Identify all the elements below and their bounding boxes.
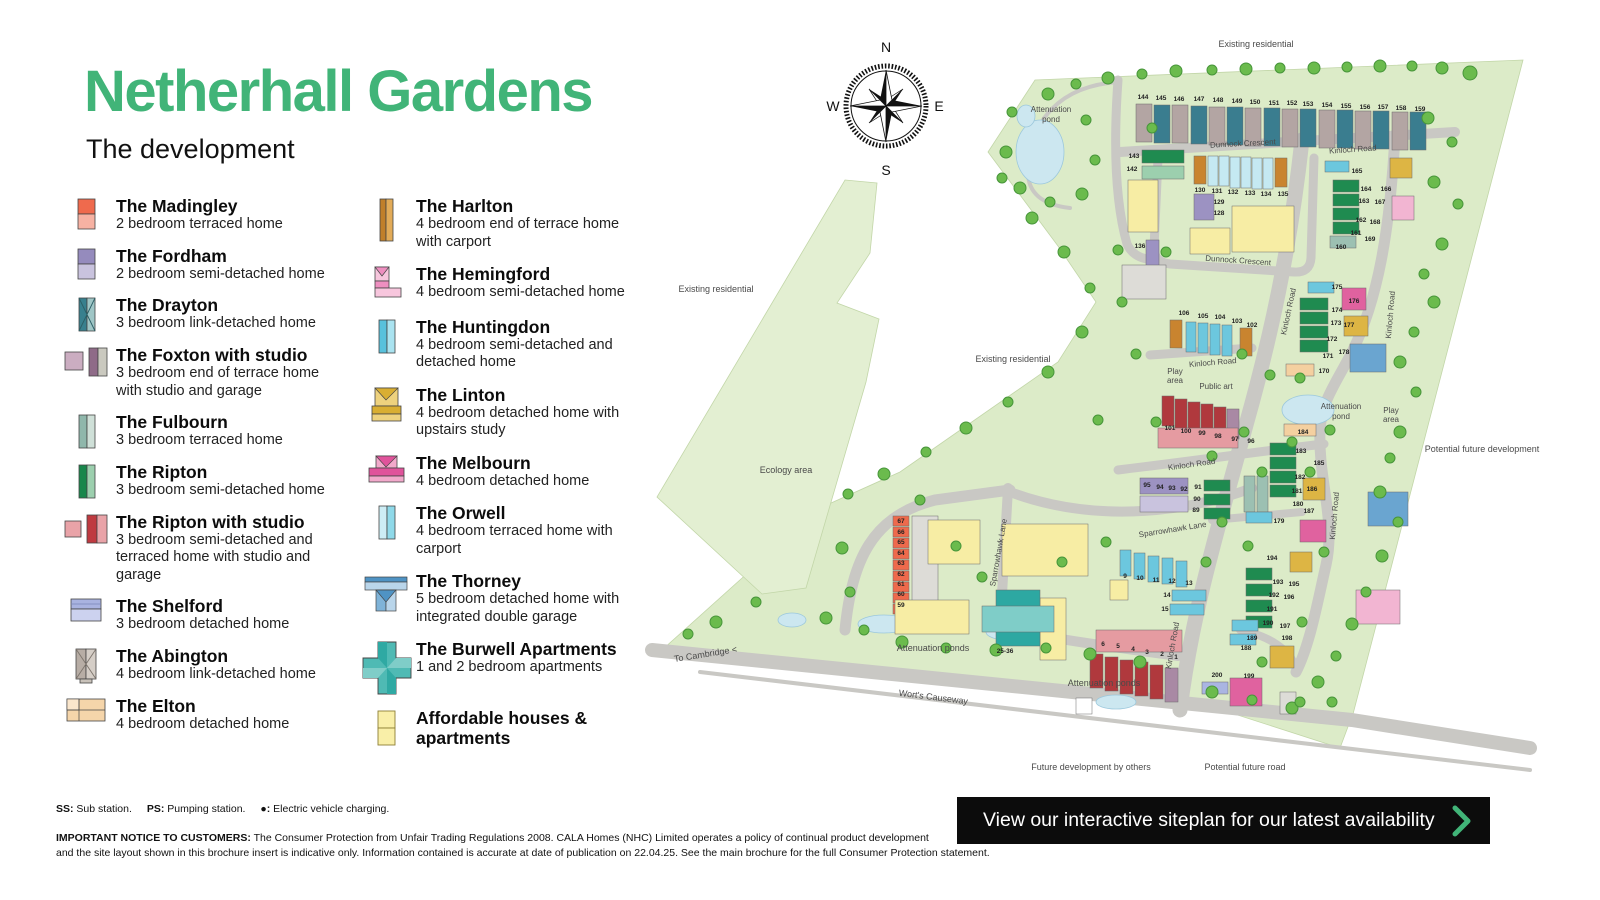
tree-icon <box>1071 79 1081 89</box>
legend-item-fordham: The Fordham2 bedroom semi-detached home <box>58 246 368 284</box>
house-block <box>1191 106 1207 144</box>
map-label: Public art <box>1199 382 1233 391</box>
plot-number: 182 <box>1295 474 1306 481</box>
tree-icon <box>1394 356 1406 368</box>
tree-icon <box>1305 467 1315 477</box>
ps-text: Pumping station. <box>164 803 245 815</box>
plot-number: 189 <box>1247 635 1258 642</box>
plot-number: 134 <box>1261 191 1272 198</box>
legend-desc: 4 bedroom end of terrace home with carpo… <box>416 216 628 251</box>
plot-number: 154 <box>1322 102 1333 109</box>
plot-number: 165 <box>1352 168 1363 175</box>
tree-icon <box>1361 587 1371 597</box>
plot-number: 62 <box>897 571 905 578</box>
tree-icon <box>1257 657 1267 667</box>
map-label: Attenuation ponds <box>1068 678 1141 688</box>
plot-number: 162 <box>1356 217 1367 224</box>
tree-icon <box>1342 62 1352 72</box>
house-block <box>1263 158 1273 189</box>
legend-column-2: The Harlton4 bedroom end of terrace home… <box>358 196 658 761</box>
tree-icon <box>1393 517 1403 527</box>
legend-item-melbourn: The Melbourn4 bedroom detached home <box>358 453 658 491</box>
tree-icon <box>1308 62 1320 74</box>
tree-icon <box>843 489 853 499</box>
house-block <box>1204 494 1230 505</box>
plot-number: 159 <box>1415 106 1426 113</box>
legend-name: The Foxton with studio <box>116 345 368 365</box>
ev-charging-icon: ●: <box>260 803 270 815</box>
house-block <box>1136 104 1152 142</box>
tree-icon <box>1419 269 1429 279</box>
house-block <box>1194 156 1206 184</box>
house-block <box>1002 524 1088 576</box>
tree-icon <box>710 616 722 628</box>
plot-number: 94 <box>1156 484 1164 491</box>
house-block <box>1333 180 1359 192</box>
plot-number: 145 <box>1156 95 1167 102</box>
plot-number: 195 <box>1289 581 1300 588</box>
plot-number: 194 <box>1267 555 1278 562</box>
tree-icon <box>1409 327 1419 337</box>
legend-item-elton: The Elton4 bedroom detached home <box>58 696 368 734</box>
tree-icon <box>1394 426 1406 438</box>
map-label: Attenuation <box>1321 402 1361 411</box>
legend-desc: 1 and 2 bedroom apartments <box>416 659 628 676</box>
ps-abbrev: PS: <box>147 803 165 815</box>
tree-icon <box>1319 547 1329 557</box>
legend-item-abington: The Abington4 bedroom link-detached home <box>58 646 368 684</box>
plot-number: 183 <box>1296 448 1307 455</box>
thorney-icon <box>358 571 416 626</box>
page-title: Netherhall Gardens <box>84 58 592 125</box>
plot-number: 65 <box>897 539 905 546</box>
tree-icon <box>1297 617 1307 627</box>
house-block <box>1300 326 1328 338</box>
house-block <box>1162 396 1174 426</box>
house-block <box>1230 678 1262 706</box>
tree-icon <box>1161 247 1171 257</box>
tree-icon <box>1093 415 1103 425</box>
melbourn-icon <box>358 453 416 491</box>
legend-name: The Elton <box>116 696 368 716</box>
legend-desc: 3 bedroom semi-detached home <box>116 482 328 499</box>
legend-desc: 4 bedroom detached home <box>416 473 628 490</box>
house-block <box>1300 312 1328 324</box>
legend-item-linton: The Linton4 bedroom detached home with u… <box>358 385 658 440</box>
map-label: pond <box>1042 115 1060 124</box>
plot-number: 105 <box>1198 313 1209 320</box>
map-label: pond <box>1332 412 1350 421</box>
tree-icon <box>1134 656 1146 668</box>
legend-item-affordable: Affordable houses & apartments <box>358 708 658 748</box>
plot-number: 190 <box>1263 620 1274 627</box>
plot-number: 173 <box>1331 320 1342 327</box>
tree-icon <box>1247 695 1257 705</box>
legend-name: The Linton <box>416 385 658 405</box>
tree-icon <box>1045 197 1055 207</box>
house-block <box>1210 324 1220 355</box>
plot-number: 151 <box>1269 100 1280 107</box>
plot-number: 169 <box>1365 236 1376 243</box>
plot-number: 61 <box>897 581 905 588</box>
tree-icon <box>1147 123 1157 133</box>
tree-icon <box>1243 541 1253 551</box>
plot-number: 175 <box>1332 284 1343 291</box>
map-label: Ecology area <box>760 465 813 475</box>
house-block <box>1300 109 1316 147</box>
legend-item-fulbourn: The Fulbourn3 bedroom terraced home <box>58 412 368 450</box>
legend-desc: 3 bedroom semi-detached and terraced hom… <box>116 532 328 584</box>
tree-icon <box>1137 69 1147 79</box>
plot-number: 136 <box>1135 243 1146 250</box>
tree-icon <box>1014 182 1026 194</box>
fordham-icon <box>58 246 116 284</box>
plot-number: 143 <box>1129 153 1140 160</box>
legend-name: The Huntingdon <box>416 317 658 337</box>
house-block <box>1198 323 1208 353</box>
house-block <box>1290 552 1312 572</box>
tree-icon <box>1275 63 1285 73</box>
legend-desc: 3 bedroom terraced home <box>116 432 328 449</box>
tree-icon <box>1428 176 1440 188</box>
legend-desc: 3 bedroom link-detached home <box>116 315 328 332</box>
compass-n-label: N <box>881 39 891 55</box>
plot-number: 63 <box>897 560 905 567</box>
plot-number: 152 <box>1287 100 1298 107</box>
pond <box>1016 120 1064 184</box>
legend-desc: 4 bedroom semi-detached and detached hom… <box>416 337 628 372</box>
house-block <box>1244 476 1255 512</box>
house-block <box>1300 340 1328 352</box>
legend-desc: 3 bedroom detached home <box>116 616 328 633</box>
legend-desc: 3 bedroom end of terrace home with studi… <box>116 365 328 400</box>
notice-line1: The Consumer Protection from Unfair Trad… <box>251 832 929 844</box>
house-block <box>1110 580 1128 600</box>
plot-number: 135 <box>1278 191 1289 198</box>
legend-item-hemingford: The Hemingford4 bedroom semi-detached ho… <box>358 264 658 304</box>
ripton-studio-icon <box>58 512 116 584</box>
plot-number: 97 <box>1231 436 1239 443</box>
harlton-icon <box>358 196 416 251</box>
tree-icon <box>977 572 987 582</box>
tree-icon <box>1436 238 1448 250</box>
tree-icon <box>859 625 869 635</box>
tree-icon <box>1207 65 1217 75</box>
tree-icon <box>836 542 848 554</box>
ev-text: Electric vehicle charging. <box>270 803 389 815</box>
tree-icon <box>1295 697 1305 707</box>
legend-item-madingley: The Madingley2 bedroom terraced home <box>58 196 368 234</box>
tree-icon <box>1217 517 1227 527</box>
plot-number: 155 <box>1341 103 1352 110</box>
tree-icon <box>1042 366 1054 378</box>
tree-icon <box>1076 326 1088 338</box>
plot-number: 5 <box>1116 643 1120 650</box>
plot-number: 142 <box>1127 166 1138 173</box>
legend-item-drayton: The Drayton3 bedroom link-detached home <box>58 295 368 333</box>
tree-icon <box>1085 283 1095 293</box>
plot-number: 170 <box>1319 368 1330 375</box>
plot-number: 164 <box>1361 186 1372 193</box>
house-block <box>1204 508 1230 519</box>
tree-icon <box>1385 453 1395 463</box>
legend-desc: 4 bedroom detached home with upstairs st… <box>416 405 628 440</box>
plot-number: 144 <box>1138 94 1149 101</box>
legend-item-ripton-studio: The Ripton with studio3 bedroom semi-det… <box>58 512 368 584</box>
tree-icon <box>820 612 832 624</box>
legend-name: The Harlton <box>416 196 658 216</box>
plot-number: 193 <box>1273 579 1284 586</box>
plot-number: 3 <box>1145 649 1149 656</box>
house-block <box>1270 646 1294 668</box>
tree-icon <box>1447 137 1457 147</box>
madingley-icon <box>58 196 116 234</box>
tree-icon <box>1407 61 1417 71</box>
huntingdon-icon <box>358 317 416 372</box>
interactive-siteplan-banner[interactable]: View our interactive siteplan for our la… <box>957 797 1490 844</box>
house-block <box>1390 158 1412 178</box>
tree-icon <box>960 422 972 434</box>
plot-number: 174 <box>1332 307 1343 314</box>
tree-icon <box>1374 60 1386 72</box>
map-label: Wort's Causeway <box>898 688 969 706</box>
plot-number: 178 <box>1339 349 1350 356</box>
fulbourn-icon <box>58 412 116 450</box>
map-label: Future development by others <box>1031 762 1151 772</box>
tree-icon <box>1287 437 1297 447</box>
house-block <box>1337 110 1353 148</box>
compass-rose-icon: N E S W <box>826 30 946 182</box>
map-label: Attenuation ponds <box>897 643 970 653</box>
plot-number: 200 <box>1212 672 1223 679</box>
plot-number: 181 <box>1292 488 1303 495</box>
house-block <box>1270 471 1296 483</box>
plot-number: 176 <box>1349 298 1360 305</box>
house-block <box>1219 156 1229 186</box>
house-block <box>1204 480 1230 491</box>
house-block <box>1300 298 1328 310</box>
tree-icon <box>845 587 855 597</box>
tree-icon <box>1428 296 1440 308</box>
tree-icon <box>1084 648 1096 660</box>
plot-number: 100 <box>1181 428 1192 435</box>
house-block <box>1241 157 1251 188</box>
legend-desc: 4 bedroom terraced home with carport <box>416 523 628 558</box>
plot-number: 171 <box>1323 353 1334 360</box>
legend-item-shelford: The Shelford3 bedroom detached home <box>58 596 368 634</box>
legend-item-foxton: The Foxton with studio3 bedroom end of t… <box>58 345 368 400</box>
tree-icon <box>1411 387 1421 397</box>
tree-icon <box>1003 397 1013 407</box>
legend-desc: 2 bedroom terraced home <box>116 216 328 233</box>
tree-icon <box>951 541 961 551</box>
foxton-icon <box>58 345 116 400</box>
plot-number: 179 <box>1274 518 1285 525</box>
house-block <box>1146 240 1159 266</box>
plot-number: 131 <box>1212 188 1223 195</box>
chevron-right-icon <box>1452 805 1472 837</box>
house-block <box>1186 322 1196 352</box>
plot-number: 89 <box>1192 507 1200 514</box>
tree-icon <box>1453 199 1463 209</box>
tree-icon <box>1081 115 1091 125</box>
legend-name: The Hemingford <box>416 264 658 284</box>
plot-number: 191 <box>1267 606 1278 613</box>
house-block <box>1350 344 1386 372</box>
tree-icon <box>1374 486 1386 498</box>
plot-number: 148 <box>1213 97 1224 104</box>
tree-icon <box>1102 72 1114 84</box>
tree-icon <box>997 173 1007 183</box>
house-block <box>1325 161 1349 172</box>
legend-name: The Orwell <box>416 503 658 523</box>
compass-e-label: E <box>934 98 943 114</box>
tree-icon <box>1201 557 1211 567</box>
house-block <box>1122 265 1166 299</box>
plot-number: 185 <box>1314 460 1325 467</box>
plot-number: 91 <box>1194 484 1202 491</box>
plot-number: 10 <box>1136 575 1144 582</box>
plot-number: 163 <box>1359 198 1370 205</box>
legend-name: The Madingley <box>116 196 368 216</box>
map-label: area <box>1167 376 1184 385</box>
plot-number: 13 <box>1185 580 1193 587</box>
house-block <box>1282 109 1298 147</box>
plot-number: 188 <box>1241 645 1252 652</box>
house-block <box>1150 665 1163 699</box>
tree-icon <box>1422 112 1434 124</box>
map-label: Play <box>1167 367 1183 376</box>
orwell-icon <box>358 503 416 558</box>
plot-number: 180 <box>1293 501 1304 508</box>
plot-number: 11 <box>1153 577 1160 584</box>
tree-icon <box>1090 155 1100 165</box>
legend-name: The Ripton <box>116 462 368 482</box>
plot-number: 157 <box>1378 104 1389 111</box>
house-block <box>1172 590 1206 601</box>
legend-name: The Drayton <box>116 295 368 315</box>
house-block <box>1246 512 1272 523</box>
tree-icon <box>1265 370 1275 380</box>
plot-number: 103 <box>1232 318 1243 325</box>
house-block <box>1319 110 1335 148</box>
plot-number: 99 <box>1198 430 1206 437</box>
tree-icon <box>1239 427 1249 437</box>
tree-icon <box>1041 643 1051 653</box>
ss-abbrev: SS: <box>56 803 74 815</box>
plot-number: 59 <box>897 602 905 609</box>
tree-icon <box>915 495 925 505</box>
plot-number: 133 <box>1245 190 1256 197</box>
tree-icon <box>1206 686 1218 698</box>
abington-icon <box>58 646 116 684</box>
house-block <box>1190 228 1230 254</box>
tree-icon <box>1240 63 1252 75</box>
plot-number: 96 <box>1247 438 1255 445</box>
plot-number: 92 <box>1180 486 1188 493</box>
tree-icon <box>1151 417 1161 427</box>
tree-icon <box>1327 697 1337 707</box>
plot-number: 177 <box>1344 322 1355 329</box>
plot-number: 199 <box>1244 673 1255 680</box>
house-block <box>1120 660 1133 694</box>
tree-icon <box>1346 618 1358 630</box>
plot-number: 197 <box>1280 623 1291 630</box>
house-block <box>1142 166 1184 179</box>
map-label: Existing residential <box>975 354 1050 364</box>
house-block <box>1257 476 1268 512</box>
cta-label: View our interactive siteplan for our la… <box>983 809 1452 832</box>
drayton-icon <box>58 295 116 333</box>
tree-icon <box>1007 107 1017 117</box>
plot-number: 64 <box>897 550 905 557</box>
tree-icon <box>1376 550 1388 562</box>
tree-icon <box>1042 88 1054 100</box>
map-label: Existing residential <box>1218 39 1293 49</box>
house-block <box>1275 158 1287 187</box>
plot-number: 4 <box>1131 646 1135 653</box>
plot-number: 166 <box>1381 186 1392 193</box>
burwell-icon <box>358 639 416 695</box>
legend-desc: 2 bedroom semi-detached home <box>116 266 328 283</box>
tree-icon <box>1101 537 1111 547</box>
map-label: Attenuation <box>1031 105 1071 114</box>
tree-icon <box>1000 146 1012 158</box>
legend-item-huntingdon: The Huntingdon4 bedroom semi-detached an… <box>358 317 658 372</box>
legend-item-harlton: The Harlton4 bedroom end of terrace home… <box>358 196 658 251</box>
pond <box>778 613 806 627</box>
plot-number: 158 <box>1396 105 1407 112</box>
tree-icon <box>1131 349 1141 359</box>
house-block <box>1142 150 1184 163</box>
tree-icon <box>683 629 693 639</box>
plot-number: 147 <box>1194 96 1205 103</box>
hemingford-icon <box>358 264 416 304</box>
map-label: Potential future road <box>1204 762 1285 772</box>
tree-icon <box>921 447 931 457</box>
house-block <box>1392 196 1414 220</box>
plot-number: 156 <box>1360 104 1371 111</box>
notice-line2: and the site layout shown in this brochu… <box>56 847 990 859</box>
notice-heading: IMPORTANT NOTICE TO CUSTOMERS: <box>56 832 251 844</box>
map-label: Potential future development <box>1425 444 1540 454</box>
tree-icon <box>1331 651 1341 661</box>
house-block <box>1170 320 1182 348</box>
legend-column-1: The Madingley2 bedroom terraced home The… <box>58 196 368 745</box>
legend-name: The Shelford <box>116 596 368 616</box>
house-block <box>1300 520 1326 542</box>
legend-name: The Burwell Apartments <box>416 639 658 659</box>
footnotes: SS: Sub station. PS: Pumping station. ●:… <box>56 802 990 862</box>
legend-name: The Fordham <box>116 246 368 266</box>
house-block <box>1076 698 1092 714</box>
house-block <box>1165 668 1178 702</box>
house-block <box>1170 604 1204 615</box>
plot-number: 196 <box>1284 594 1295 601</box>
tree-icon <box>1076 188 1088 200</box>
tree-icon <box>1117 297 1127 307</box>
tree-icon <box>1057 557 1067 567</box>
plot-number: 66 <box>897 529 905 536</box>
plot-number: 198 <box>1282 635 1293 642</box>
plot-number: 153 <box>1303 101 1314 108</box>
plot-number: 172 <box>1327 336 1338 343</box>
plot-number: 67 <box>897 518 905 525</box>
legend-name: The Melbourn <box>416 453 658 473</box>
tree-icon <box>1257 467 1267 477</box>
plot-number: 187 <box>1304 508 1315 515</box>
tree-icon <box>1237 349 1247 359</box>
